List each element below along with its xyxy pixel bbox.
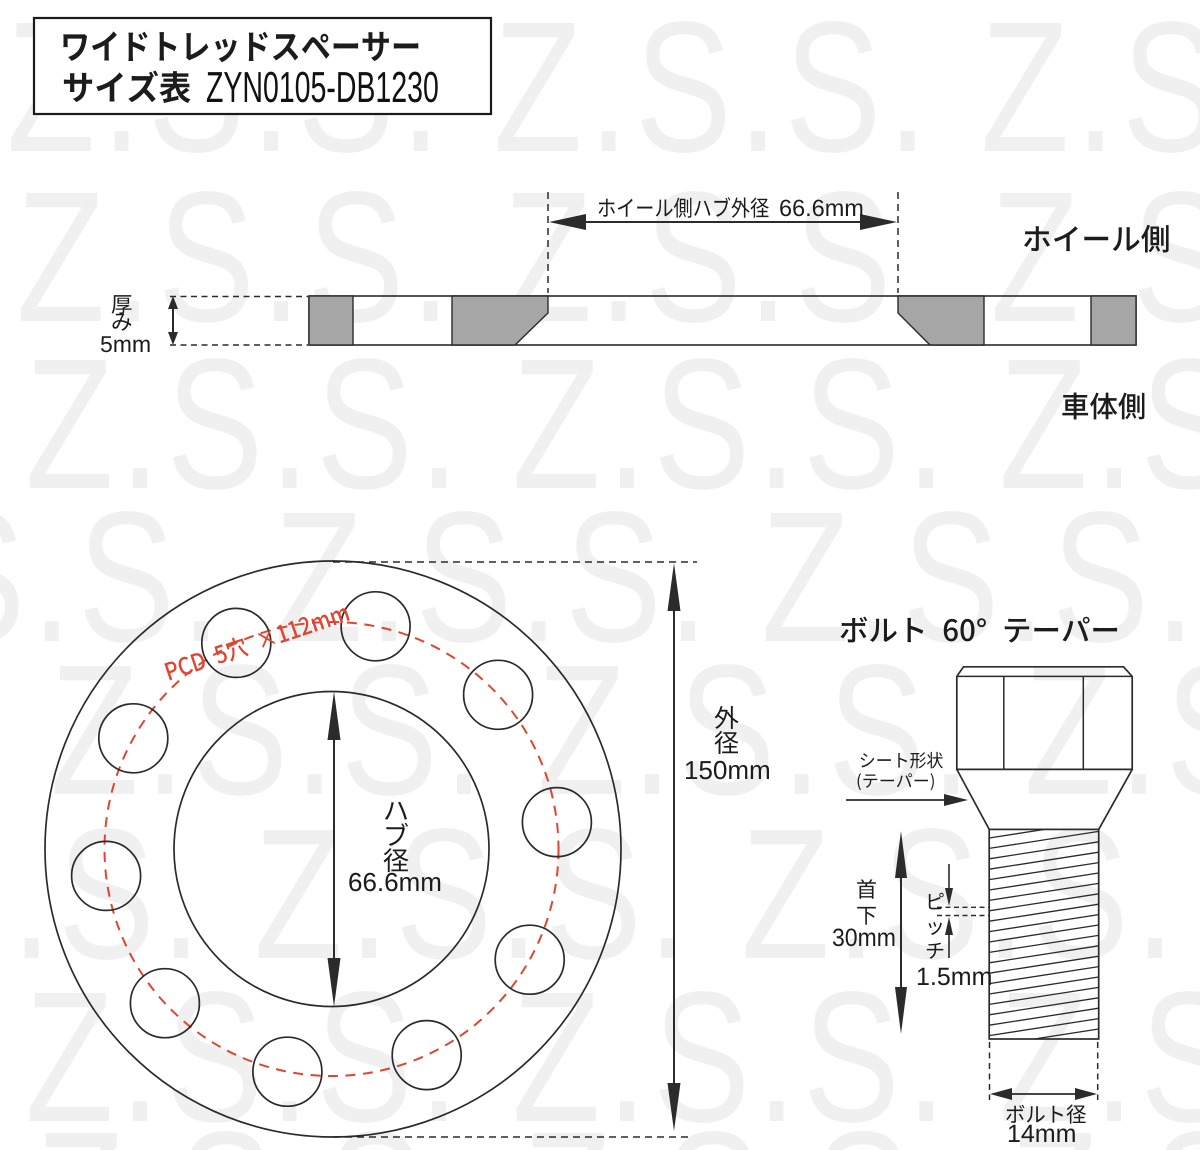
svg-text:Z.S.S. Z.S.S. Z.S.S. Z.S: Z.S.S. Z.S.S. Z.S.S. Z.S.S. (36, 1094, 1200, 1150)
